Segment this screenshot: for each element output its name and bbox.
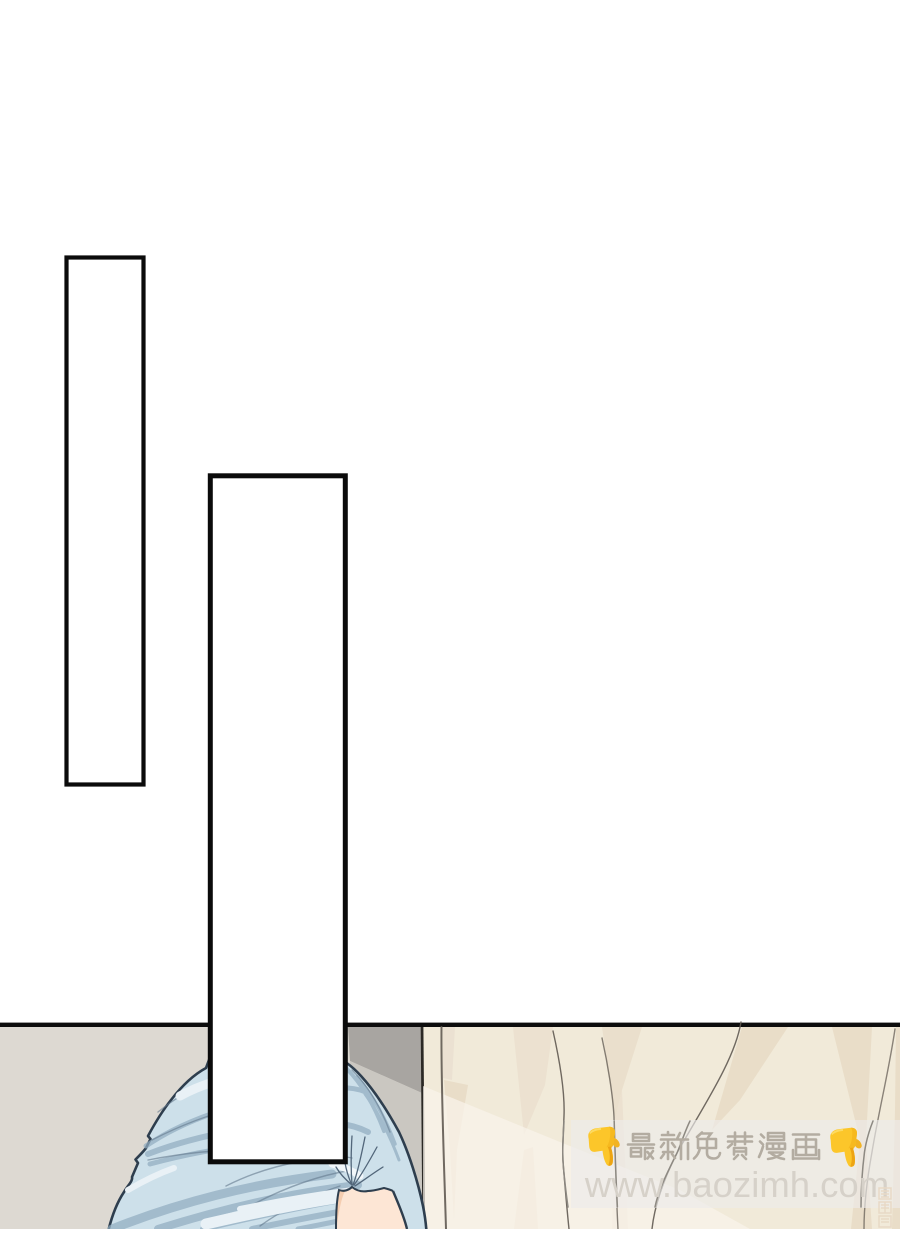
svg-text:www.baozimh.com: www.baozimh.com — [584, 1164, 889, 1205]
